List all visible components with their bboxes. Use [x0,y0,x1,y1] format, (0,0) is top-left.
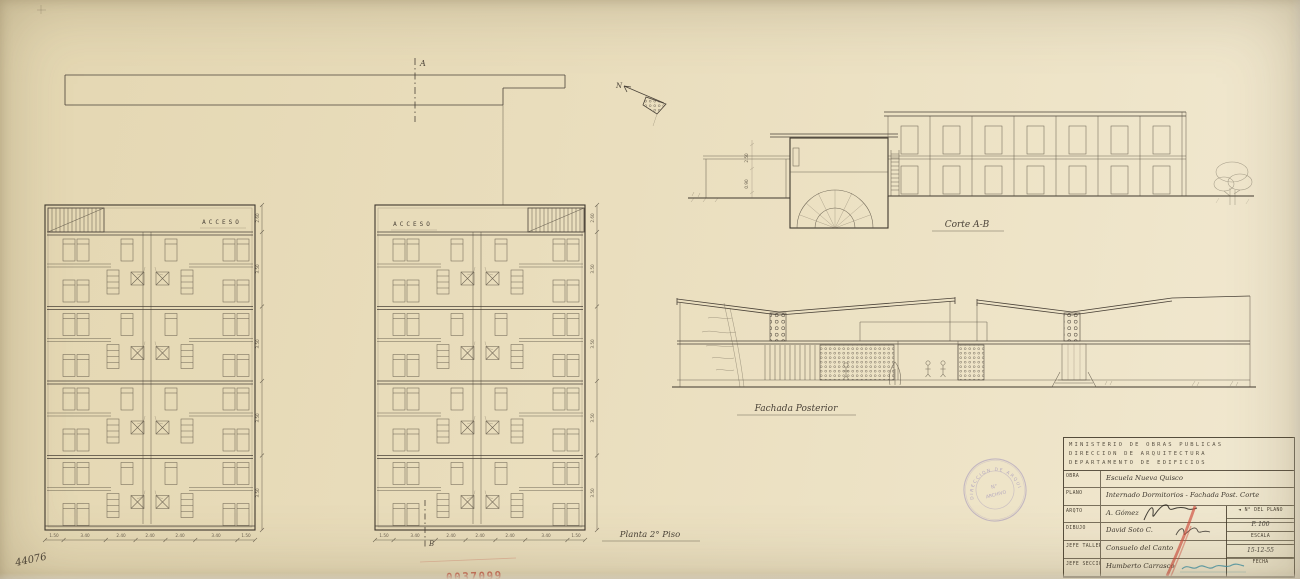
acceso-label-right: ACCESO [393,221,433,228]
svg-text:1.50: 1.50 [571,533,581,538]
svg-text:0037099: 0037099 [446,569,503,579]
tree-sketch [1214,162,1252,205]
svg-text:2.50: 2.50 [744,153,749,163]
stair [528,208,584,232]
stamp-seal: DIRECCION DE ARQUITECTURA N° ARCHIVO [957,452,1032,527]
svg-text:2.60: 2.60 [590,213,595,223]
entrance-door-right [1052,344,1096,387]
stair [48,208,104,232]
plan-no-label: ◄ N° DEL PLANO [1227,506,1294,519]
svg-text:2.40: 2.40 [116,533,126,538]
tree-left [702,303,744,387]
row-value: Consuelo del Canto [1101,541,1226,558]
breeze-block-wall-2 [958,345,984,380]
figure [940,361,945,377]
building-section [884,112,1254,196]
ministry-line: MINISTERIO DE OBRAS PUBLICAS [1064,441,1294,450]
section-dim-string: 2.50 0.90 [744,140,754,198]
acceso-label-left: ACCESO [202,219,242,226]
svg-text:3.50: 3.50 [590,488,595,498]
ministry-line: DEPARTAMENTO DE EDIFICIOS [1064,459,1294,468]
dimension-column-2: 2.60 3.50 3.50 3.50 3.50 [590,203,599,532]
stamp-center-2: ARCHIVO [985,489,1007,500]
svg-text:3.50: 3.50 [590,339,595,349]
svg-text:2.40: 2.40 [145,533,155,538]
north-label: N [615,82,623,90]
svg-text:3.50: 3.50 [255,339,260,349]
title-block-side-column: ◄ N° DEL PLANO P. 100 ESCALA 15-12-55 FE… [1226,506,1294,577]
plan-no-value: P. 100 [1227,519,1294,532]
row-value: Internado Dormitorios - Fachada Post. Co… [1101,488,1294,505]
drawing-sheet: A N ACCESO ACCESO B [0,0,1300,579]
stair-hall-section [770,134,898,228]
svg-text:2.40: 2.40 [175,533,185,538]
row-value: Humberto Carrasco [1101,559,1226,576]
svg-text:3.50: 3.50 [255,488,260,498]
svg-text:2.40: 2.40 [446,533,456,538]
dimension-chain-left: 1.50 3.40 2.40 2.40 2.40 3.40 1.50 [43,533,257,542]
row-label: ARQTO [1064,506,1101,522]
svg-text:3.40: 3.40 [211,533,221,538]
figure [925,361,930,377]
svg-text:3.50: 3.50 [590,264,595,274]
row-label: JEFE TALLER [1064,541,1101,558]
storefront-glazing [765,345,815,380]
fecha-label: FECHA [1227,558,1294,573]
fachada-label: Fachada Posterior [737,404,856,415]
arrow-left-icon: ◄ [1238,508,1241,513]
ministry-line: DIRECCION DE ARQUITECTURA [1064,450,1294,459]
row-label: JEFE SECCION [1064,559,1101,576]
svg-text:2.40: 2.40 [505,533,515,538]
breeze-block-wall-1 [820,345,894,380]
svg-text:2.40: 2.40 [475,533,485,538]
grass-ticks [1105,381,1238,386]
svg-text:Corte A-B: Corte A-B [945,220,990,230]
svg-text:0.90: 0.90 [744,179,749,189]
svg-text:3.40: 3.40 [541,533,551,538]
row-label: OBRA [1064,471,1101,487]
red-archive-stamp: 0037099 [420,558,516,579]
svg-text:Planta 2° Piso: Planta 2° Piso [619,530,680,540]
svg-text:Fachada Posterior: Fachada Posterior [754,404,838,414]
row-label: PLANO [1064,488,1101,505]
corridor-band [65,75,565,205]
title-block-row: OBRA Escuela Nueva Quisco [1064,471,1294,488]
dimension-chain-right: 1.50 3.40 2.40 2.40 2.40 3.40 1.50 [373,533,587,542]
row-value: A. Gómez [1101,506,1226,522]
svg-text:1.50: 1.50 [241,533,251,538]
breeze-screen-column-left [770,313,786,341]
planta-label: Planta 2° Piso [602,530,700,541]
breeze-screen-column-right [1064,313,1080,341]
svg-text:3.40: 3.40 [410,533,420,538]
svg-text:1.50: 1.50 [49,533,59,538]
stamp-center-1: N° [991,483,999,490]
svg-text:3.50: 3.50 [255,264,260,274]
row-label: DIBUJO [1064,523,1101,540]
escala-label: ESCALA [1227,532,1294,545]
axis-b-label: B [428,540,434,548]
svg-text:3.40: 3.40 [80,533,90,538]
row-value: Escuela Nueva Quisco [1101,471,1294,487]
section-line-a: A [415,58,426,122]
north-arrow-icon: N [615,82,666,126]
svg-text:3.50: 3.50 [255,413,260,423]
corte-label: Corte A-B [932,220,1004,231]
floor-plan-right: ACCESO B [375,205,585,548]
ladder [891,150,899,196]
floor-plan-left: ACCESO [45,205,255,530]
svg-text:1.50: 1.50 [379,533,389,538]
title-block-header: MINISTERIO DE OBRAS PUBLICAS DIRECCION D… [1064,438,1294,471]
fecha-value: 15-12-55 [1227,545,1294,558]
row-value: David Soto C. [1101,523,1226,540]
section-corte-ab: 2.50 0.90 [688,112,1254,231]
axis-a-label: A [419,59,426,68]
svg-text:3.50: 3.50 [590,413,595,423]
svg-text:2.60: 2.60 [255,213,260,223]
registration-mark [37,5,46,14]
sheet-number: 44076 [13,551,48,569]
title-block-row: PLANO Internado Dormitorios - Fachada Po… [1064,488,1294,506]
dimension-column-1: 2.60 3.50 3.50 3.50 3.50 [255,203,264,532]
elevation-fachada-posterior: Fachada Posterior [672,296,1256,415]
title-block: MINISTERIO DE OBRAS PUBLICAS DIRECCION D… [1063,437,1295,578]
